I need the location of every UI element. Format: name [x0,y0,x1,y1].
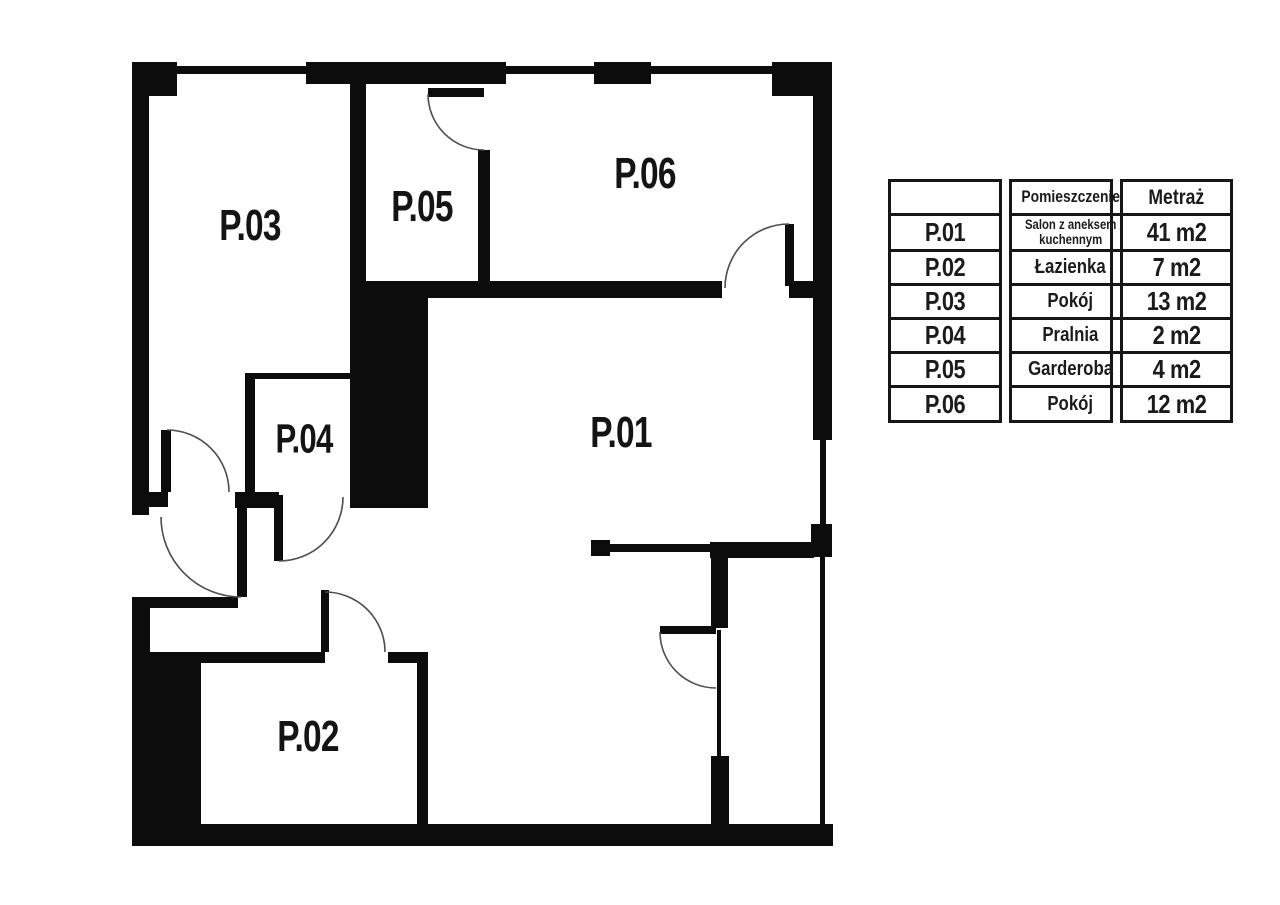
legend-room-id: P.04 [891,317,999,351]
wall-left-upper [132,62,149,515]
legend-header-name: Pomieszczenie [1012,182,1129,213]
legend-room-id: P.03 [891,283,999,317]
door-arc-p03 [167,430,229,492]
legend-room-name: Pokój [1012,283,1129,317]
wall-p02-right [417,652,428,824]
wall-top-pier-1 [306,62,506,84]
door-leaf-p06 [785,224,794,286]
wall-entry-post [237,492,247,597]
legend-column-room-names: Pomieszczenie Salon z aneksem kuchennym … [1009,179,1113,423]
wall-right-lower-window-line [820,557,825,827]
wall-p02-left-mass [148,652,201,824]
room-label-p01: P.01 [590,408,651,458]
legend-room-name: Garderoba [1012,351,1129,385]
room-label-p06: P.06 [614,149,675,199]
room-label-p02: P.02 [277,712,338,762]
wall-p03-bottom-piece [148,492,168,507]
legend-room-id: P.05 [891,351,999,385]
door-arc-p05 [428,94,484,150]
legend-column-areas: Metraż 41 m2 7 m2 13 m2 2 m2 4 m2 12 m2 [1120,179,1233,423]
wall-p04-left [245,373,255,494]
wall-central-block [350,284,428,508]
wall-top-pier-2 [594,62,651,84]
legend-header-area: Metraż [1123,182,1230,213]
wall-niche-upper [711,553,728,628]
legend-room-area: 13 m2 [1123,283,1230,317]
door-arcs-group [161,94,789,688]
legend-room-area: 41 m2 [1123,213,1230,249]
legend-room-area: 4 m2 [1123,351,1230,385]
floor-plan-page: P.01 P.02 P.03 P.04 P.05 P.06 P.01 P.02 … [0,0,1280,905]
wall-partition-thin [591,544,711,552]
door-leaf-p05 [428,88,484,97]
door-arc-p02 [325,592,385,652]
room-label-p04: P.04 [275,416,332,463]
wall-p05-p06-divider [478,150,490,284]
wall-right-window-line [820,440,826,524]
door-leaf-p04 [274,495,283,561]
wall-corner-bottom-right [810,824,833,846]
wall-p02-top-right [388,652,418,663]
wall-left-lower [132,597,150,846]
legend-room-area: 2 m2 [1123,317,1230,351]
door-leaf-p02 [321,590,329,652]
wall-right-pier [811,524,832,557]
door-leaf-niche [660,626,716,634]
legend-room-id: P.02 [891,249,999,283]
wall-p04-top [245,373,350,379]
legend-room-id: P.01 [891,213,999,249]
legend-room-name: Łazienka [1012,249,1129,283]
door-leaf-p03 [161,430,171,492]
legend-room-name: Pokój [1012,385,1129,420]
legend-room-name: Pralnia [1012,317,1129,351]
legend-table: P.01 P.02 P.03 P.04 P.05 P.06 Pomieszcze… [888,179,1233,423]
wall-right-upper [813,62,832,440]
door-arc-niche [660,632,716,688]
walls-group [132,62,833,846]
room-label-p05: P.05 [391,182,452,232]
legend-room-area: 7 m2 [1123,249,1230,283]
door-arc-p06 [725,224,789,288]
wall-p01-top [350,281,722,298]
legend-room-name: Salon z aneksem kuchennym [1012,213,1129,249]
room-label-p03: P.03 [219,201,280,251]
door-arc-entry [161,517,241,597]
wall-p02-top-left [200,652,325,663]
legend-room-id: P.06 [891,385,999,420]
wall-entry-nook [148,597,238,608]
wall-bottom [132,824,833,846]
legend-header-empty [891,182,999,213]
wall-p03-p05-divider [350,84,366,284]
legend-room-area: 12 m2 [1123,385,1230,420]
wall-niche-glass-line [717,630,721,756]
door-leaves-group [161,88,794,652]
wall-niche-lower [711,756,729,824]
door-arc-p04 [279,497,343,561]
legend-column-room-ids: P.01 P.02 P.03 P.04 P.05 P.06 [888,179,1002,423]
